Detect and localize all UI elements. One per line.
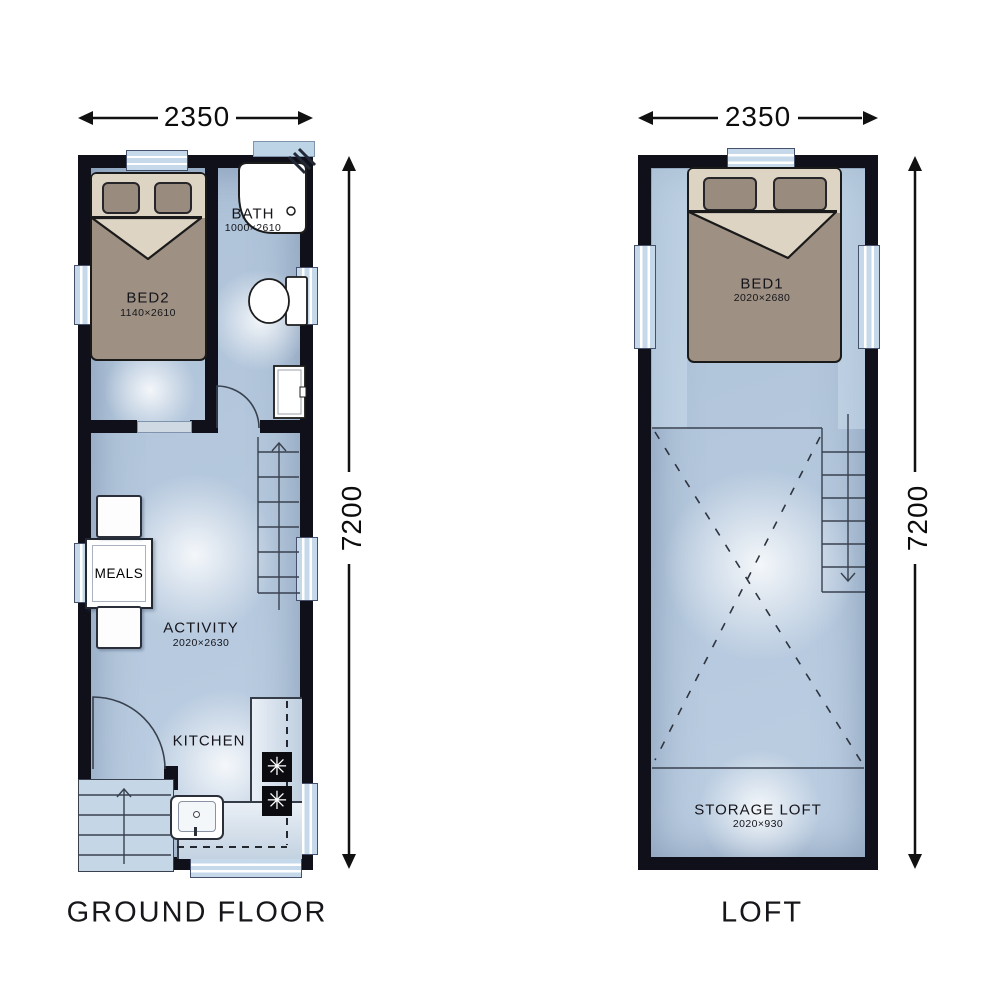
partition-segment — [260, 420, 300, 433]
floor-highlight — [210, 270, 310, 370]
window — [126, 150, 188, 171]
window — [858, 245, 880, 349]
kitchen-label: KITCHEN — [173, 733, 246, 750]
window — [296, 267, 318, 325]
bath-window-band — [253, 141, 315, 157]
burner-glyph: ✳ — [267, 755, 288, 780]
loft-width-dimension: 2350 — [725, 101, 791, 133]
bed1-icon — [687, 167, 842, 363]
window — [190, 858, 302, 878]
partition-segment — [91, 420, 137, 433]
pillow-icon — [703, 177, 757, 211]
storage-loft-label: STORAGE LOFT — [694, 802, 822, 819]
entry-steps — [78, 779, 174, 872]
activity-label: ACTIVITY — [163, 620, 239, 637]
bath-label: BATH — [232, 206, 275, 223]
kitchen-sink-icon — [170, 795, 224, 840]
faucet-icon — [194, 827, 197, 836]
partition-segment — [190, 420, 205, 433]
ground-length-dimension: 7200 — [336, 485, 368, 551]
loft-side-ledge — [652, 169, 687, 429]
pillow-icon — [102, 182, 140, 214]
activity-size: 2020×2630 — [173, 637, 229, 649]
stove-burner-icon: ✳ — [262, 786, 292, 816]
bed2-size: 1140×2610 — [120, 307, 176, 319]
floor-plan-sheet: MEALS — [0, 0, 1000, 1000]
window — [634, 245, 656, 349]
pillow-icon — [773, 177, 827, 211]
ground-width-dimension: 2350 — [164, 101, 230, 133]
bed2-label: BED2 — [126, 290, 169, 307]
loft-length-dimension: 7200 — [902, 485, 934, 551]
bed2-opening — [137, 421, 192, 433]
floor-highlight — [665, 470, 855, 660]
ground-floor-title: GROUND FLOOR — [67, 897, 328, 930]
storage-loft-size: 2020×930 — [733, 818, 783, 830]
window — [296, 537, 318, 601]
meals-table: MEALS — [85, 538, 153, 609]
bed1-label: BED1 — [740, 276, 783, 293]
chair-icon — [96, 606, 142, 649]
burner-glyph: ✳ — [267, 789, 288, 814]
pillow-icon — [154, 182, 192, 214]
bed1-size: 2020×2680 — [734, 292, 790, 304]
wall-bottom — [638, 857, 878, 870]
sink-drain — [193, 811, 200, 818]
bath-size: 1000×2610 — [225, 222, 281, 234]
stove-burner-icon: ✳ — [262, 752, 292, 782]
loft-title: LOFT — [721, 897, 803, 930]
bed2-icon — [90, 172, 207, 361]
meals-room-label: MEALS — [95, 566, 144, 581]
chair-icon — [96, 495, 142, 538]
